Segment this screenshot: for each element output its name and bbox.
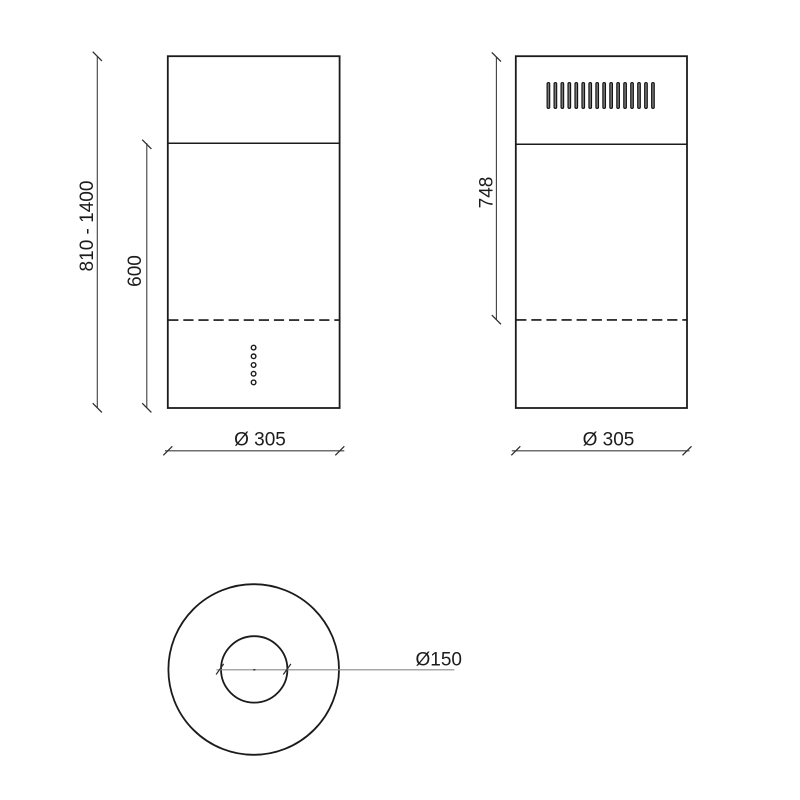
svg-text:810 - 1400: 810 - 1400 <box>77 181 98 272</box>
svg-text:748: 748 <box>477 177 498 209</box>
svg-text:Ø 305: Ø 305 <box>583 429 635 450</box>
svg-text:Ø150: Ø150 <box>416 650 462 671</box>
svg-text:Ø 305: Ø 305 <box>234 429 286 450</box>
svg-text:600: 600 <box>125 255 146 287</box>
